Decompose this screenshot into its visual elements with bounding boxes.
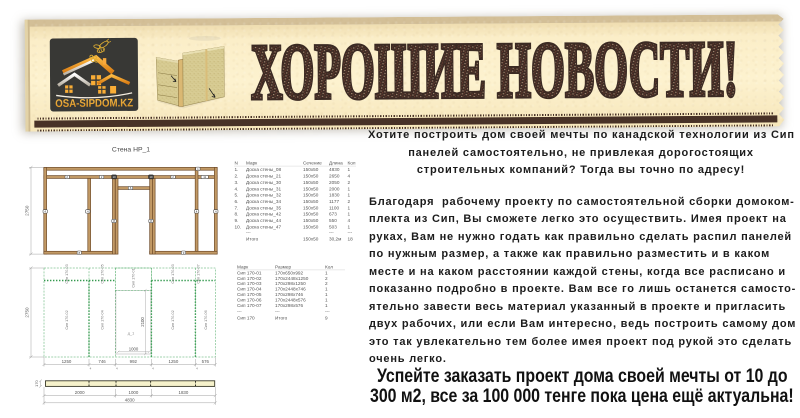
- svg-text:7.: 7.: [235, 205, 239, 210]
- svg-text:Сип 170-04: Сип 170-04: [100, 310, 104, 329]
- svg-text:1830: 1830: [329, 193, 340, 198]
- svg-text:170x2448x746: 170x2448x746: [275, 287, 306, 292]
- svg-text:1.: 1.: [235, 167, 239, 172]
- svg-text:Сип 170-02: Сип 170-02: [65, 310, 69, 329]
- svg-text:Сип 170-02: Сип 170-02: [171, 310, 175, 329]
- svg-text:18: 18: [348, 237, 354, 242]
- svg-text:Длина: Длина: [329, 161, 343, 166]
- svg-text:4: 4: [196, 367, 198, 371]
- svg-text:Доска стены_42: Доска стены_42: [246, 212, 281, 217]
- svg-text:150x50: 150x50: [303, 205, 319, 210]
- svg-text:150x50: 150x50: [303, 218, 319, 223]
- svg-text:170: 170: [34, 380, 39, 387]
- svg-text:1: 1: [348, 212, 351, 217]
- svg-text:2: 2: [348, 199, 351, 204]
- svg-text:170x2448x1250: 170x2448x1250: [275, 276, 309, 281]
- svg-text:2: 2: [325, 281, 328, 286]
- svg-text:Итого: Итого: [275, 315, 288, 320]
- svg-text:170x298x746: 170x298x746: [275, 292, 304, 297]
- svg-text:746: 746: [98, 359, 106, 364]
- svg-text:Сип 170-06: Сип 170-06: [237, 298, 262, 303]
- svg-text:11: 11: [203, 175, 206, 179]
- svg-text:Марк: Марк: [237, 264, 249, 269]
- svg-text:Доска стены_47: Доска стены_47: [246, 224, 281, 229]
- svg-text:1: 1: [348, 193, 351, 198]
- svg-text:---: ---: [348, 230, 353, 235]
- svg-text:Сип 170-02: Сип 170-02: [237, 276, 262, 281]
- svg-text:Сип 170-05: Сип 170-05: [237, 292, 262, 297]
- svg-text:992: 992: [130, 359, 138, 364]
- svg-text:1: 1: [325, 292, 328, 297]
- svg-text:Марк: Марк: [246, 161, 258, 166]
- svg-text:4: 4: [152, 367, 154, 371]
- svg-text:2750: 2750: [25, 307, 30, 318]
- svg-text:Доска стены_34: Доска стены_34: [246, 199, 281, 204]
- svg-text:ХОРОШИЕ НОВОСТИ!: ХОРОШИЕ НОВОСТИ!: [251, 27, 739, 117]
- svg-text:Стена НР_1: Стена НР_1: [112, 147, 150, 154]
- svg-text:Итого: Итого: [246, 237, 259, 242]
- svg-text:6.: 6.: [235, 199, 239, 204]
- svg-text:4: 4: [348, 174, 351, 179]
- svg-text:170x650x992: 170x650x992: [275, 270, 304, 275]
- svg-text:Доска стены_21: Доска стены_21: [246, 174, 281, 179]
- svg-text:170x2448x576: 170x2448x576: [275, 298, 306, 303]
- svg-text:2000: 2000: [75, 390, 85, 395]
- svg-text:Размер: Размер: [275, 264, 292, 269]
- svg-text:OSA-SIPDOM.KZ: OSA-SIPDOM.KZ: [56, 97, 134, 110]
- svg-text:9.: 9.: [235, 218, 239, 223]
- svg-text:150x50: 150x50: [303, 180, 319, 185]
- svg-text:Сип 170-01: Сип 170-01: [237, 270, 262, 275]
- svg-text:4.: 4.: [235, 186, 239, 191]
- svg-text:1250: 1250: [169, 359, 179, 364]
- svg-text:2100: 2100: [140, 317, 145, 327]
- svg-text:673: 673: [329, 212, 337, 217]
- svg-text:---: ---: [275, 309, 280, 314]
- svg-text:2750: 2750: [25, 205, 30, 216]
- svg-text:2050: 2050: [329, 180, 340, 185]
- svg-text:Сечение: Сечение: [303, 161, 322, 166]
- svg-text:1250: 1250: [62, 359, 72, 364]
- svg-text:1: 1: [325, 303, 328, 308]
- svg-text:Сип 170-07: Сип 170-07: [237, 303, 262, 308]
- svg-text:Сип 170-05: Сип 170-05: [100, 264, 104, 283]
- svg-text:150x50: 150x50: [303, 186, 319, 191]
- svg-text:Сип 170-04: Сип 170-04: [237, 287, 262, 292]
- svg-text:150x50: 150x50: [303, 199, 319, 204]
- svg-text:1100: 1100: [329, 205, 339, 210]
- svg-text:550: 550: [329, 218, 337, 223]
- svg-text:576: 576: [202, 359, 210, 364]
- svg-text:150x50: 150x50: [303, 237, 319, 242]
- svg-text:Доска стены_08: Доска стены_08: [246, 167, 281, 172]
- svg-text:1: 1: [348, 224, 351, 229]
- svg-text:Доска стены_30: Доска стены_30: [246, 180, 281, 185]
- svg-text:150x50: 150x50: [303, 167, 319, 172]
- svg-text:1: 1: [348, 186, 351, 191]
- svg-text:---: ---: [246, 230, 251, 235]
- svg-text:Сип 170-01: Сип 170-01: [132, 268, 136, 287]
- svg-text:1177: 1177: [329, 199, 339, 204]
- svg-text:Доска стены_31: Доска стены_31: [246, 186, 281, 191]
- svg-text:3.: 3.: [235, 180, 239, 185]
- svg-text:150x50: 150x50: [303, 174, 319, 179]
- svg-text:8.: 8.: [235, 212, 239, 217]
- svg-text:2: 2: [325, 276, 328, 281]
- svg-text:Доска стены_44: Доска стены_44: [246, 218, 281, 223]
- svg-text:Сип 170: Сип 170: [237, 315, 255, 320]
- svg-text:1: 1: [325, 270, 328, 275]
- svg-text:Сип 170-06: Сип 170-06: [204, 310, 208, 329]
- svg-text:1830: 1830: [179, 390, 189, 395]
- svg-text:1: 1: [348, 205, 351, 210]
- svg-text:4830: 4830: [125, 397, 135, 402]
- svg-text:170x298x1250: 170x298x1250: [275, 281, 306, 286]
- svg-text:4: 4: [116, 367, 118, 371]
- svg-text:Доска стены_35: Доска стены_35: [246, 205, 281, 210]
- svg-text:Сип 170-03: Сип 170-03: [65, 264, 69, 283]
- svg-text:1000: 1000: [129, 347, 139, 352]
- svg-text:503: 503: [329, 224, 337, 229]
- svg-text:10.: 10.: [235, 224, 242, 229]
- svg-text:Кол: Кол: [348, 161, 356, 166]
- svg-text:N: N: [235, 161, 238, 166]
- svg-text:2000: 2000: [329, 186, 340, 191]
- svg-text:---: ---: [237, 309, 242, 314]
- svg-text:1000: 1000: [129, 390, 139, 395]
- svg-text:2: 2: [348, 180, 351, 185]
- svg-text:1: 1: [325, 298, 328, 303]
- svg-text:5.: 5.: [235, 193, 239, 198]
- svg-text:150x50: 150x50: [303, 193, 319, 198]
- svg-text:Кол: Кол: [325, 264, 333, 269]
- svg-text:Сип 170-03: Сип 170-03: [171, 264, 175, 283]
- svg-text:1: 1: [348, 167, 351, 172]
- svg-text:150x50: 150x50: [303, 212, 319, 217]
- svg-text:---: ---: [329, 230, 334, 235]
- svg-text:Доска стены_32: Доска стены_32: [246, 193, 281, 198]
- svg-text:4: 4: [90, 367, 92, 371]
- svg-text:4830: 4830: [329, 167, 340, 172]
- svg-text:9: 9: [325, 315, 328, 320]
- svg-text:Сип 170-03: Сип 170-03: [237, 281, 262, 286]
- svg-text:170x298x576: 170x298x576: [275, 303, 304, 308]
- svg-text:Сип 170-07: Сип 170-07: [196, 264, 200, 283]
- svg-text:2.: 2.: [235, 174, 239, 179]
- svg-text:150x50: 150x50: [303, 224, 319, 229]
- svg-text:4: 4: [348, 218, 351, 223]
- svg-text:д_1: д_1: [128, 332, 134, 336]
- svg-text:---: ---: [325, 309, 330, 314]
- svg-text:30,2м: 30,2м: [329, 237, 341, 242]
- svg-text:2650: 2650: [329, 174, 340, 179]
- svg-text:1: 1: [325, 287, 328, 292]
